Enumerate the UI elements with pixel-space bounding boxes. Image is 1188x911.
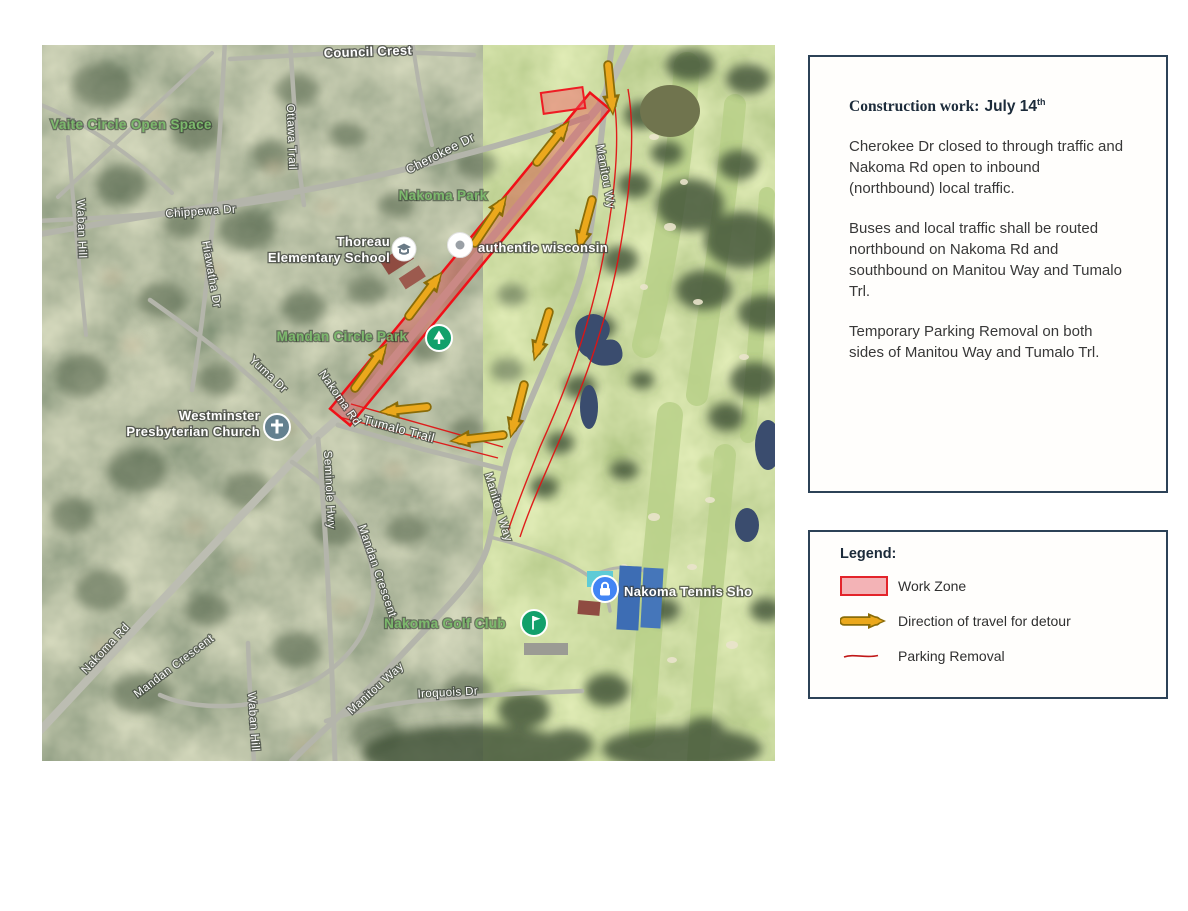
legend-item-parking: Parking Removal: [840, 638, 1166, 673]
work-zone-swatch: [840, 576, 888, 596]
detour-arrow-swatch: [840, 611, 892, 631]
info-title-label: Construction work:: [849, 98, 979, 115]
lock-icon: [592, 576, 618, 602]
school-icon: [392, 237, 416, 261]
label-authentic-wisconsin: authentic wisconsin: [478, 240, 608, 255]
label-ottawa-trail: Ottawa Trail: [284, 104, 298, 171]
legend-item-detour-arrow: Direction of travel for detour: [840, 603, 1166, 638]
label-nakoma-park: Nakoma Park: [399, 188, 488, 203]
legend-title: Legend:: [840, 546, 1166, 562]
info-title-sup: th: [1037, 97, 1046, 107]
info-paragraph-1: Cherokee Dr closed to through traffic an…: [849, 136, 1130, 199]
construction-info-panel: Construction work:July 14th Cherokee Dr …: [808, 55, 1168, 493]
label-thoreau-1: Thoreau: [337, 234, 390, 249]
park-icon: [426, 325, 452, 351]
legend-label-work-zone: Work Zone: [898, 578, 966, 594]
label-nakoma-golf-club: Nakoma Golf Club: [384, 616, 506, 631]
info-paragraph-2: Buses and local traffic shall be routed …: [849, 218, 1130, 302]
place-pin-icon: [448, 233, 473, 258]
label-vaite-circle: Vaite Circle Open Space: [50, 117, 212, 132]
legend-panel: Legend: Work Zone: [808, 530, 1168, 699]
golf-icon: [521, 610, 547, 636]
page: Council Crest Vaite Circle Open Space Ot…: [0, 0, 1188, 911]
label-waban-hill-left: Waban Hill: [74, 199, 88, 259]
legend-label-parking: Parking Removal: [898, 648, 1005, 664]
label-thoreau-2: Elementary School: [268, 250, 390, 265]
label-nakoma-tennis: Nakoma Tennis Sho: [624, 584, 752, 599]
label-westminster-1: Westminster: [179, 408, 260, 423]
satellite-map: Council Crest Vaite Circle Open Space Ot…: [42, 45, 775, 761]
label-westminster-2: Presbyterian Church: [126, 424, 260, 439]
info-paragraph-3: Temporary Parking Removal on both sides …: [849, 321, 1130, 363]
info-title: Construction work:July 14th: [849, 97, 1130, 116]
parking-line-swatch: [840, 650, 884, 662]
legend-item-work-zone: Work Zone: [840, 568, 1166, 603]
info-title-date: July 14: [984, 98, 1037, 115]
work-zone-rect: [541, 87, 586, 114]
label-mandan-circle-park: Mandan Circle Park: [277, 329, 408, 344]
pond-brown: [640, 85, 700, 137]
church-icon: [264, 414, 290, 440]
legend-label-detour: Direction of travel for detour: [898, 613, 1071, 629]
